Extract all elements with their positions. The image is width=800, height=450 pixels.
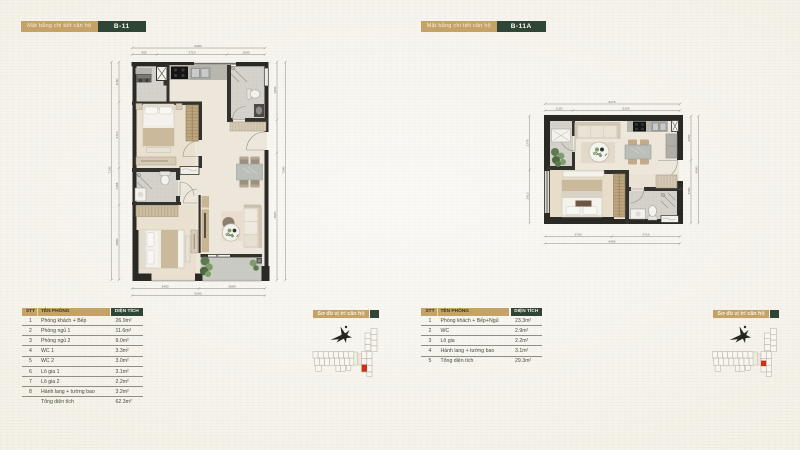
svg-text:2775: 2775 (525, 139, 529, 146)
svg-text:4080: 4080 (694, 166, 698, 173)
svg-text:3180: 3180 (687, 187, 691, 194)
svg-text:3400: 3400 (162, 284, 169, 288)
svg-text:6280: 6280 (195, 44, 202, 48)
svg-text:905: 905 (141, 50, 146, 54)
svg-text:6405: 6405 (609, 239, 616, 243)
svg-text:2730: 2730 (575, 232, 582, 236)
svg-text:2880: 2880 (229, 284, 236, 288)
svg-text:2710: 2710 (643, 232, 650, 236)
svg-text:7130: 7130 (107, 166, 111, 173)
svg-text:1150: 1150 (115, 78, 119, 85)
svg-text:1930: 1930 (273, 86, 277, 93)
svg-text:6275: 6275 (609, 100, 616, 104)
svg-text:2250: 2250 (687, 134, 691, 141)
svg-text:5155: 5155 (623, 106, 630, 110)
svg-text:1355: 1355 (115, 182, 119, 189)
svg-text:1120: 1120 (556, 106, 563, 110)
svg-text:2710: 2710 (189, 50, 196, 54)
svg-text:6280: 6280 (195, 291, 202, 295)
svg-text:2880: 2880 (115, 238, 119, 245)
svg-text:2710: 2710 (115, 131, 119, 138)
svg-text:4520: 4520 (273, 211, 277, 218)
svg-text:2610: 2610 (525, 192, 529, 199)
svg-text:7280: 7280 (281, 166, 285, 173)
svg-text:1500: 1500 (243, 50, 250, 54)
